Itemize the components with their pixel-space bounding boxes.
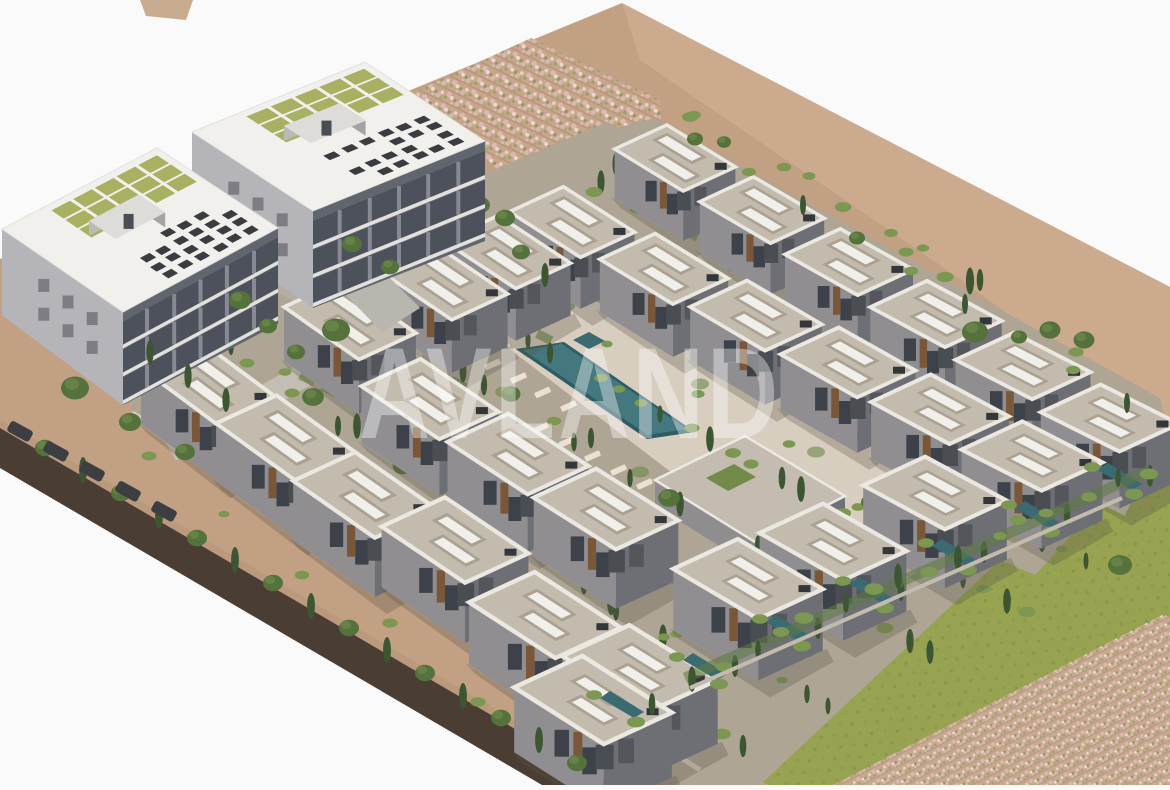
svg-text:AVLAND: AVLAND [359, 321, 781, 466]
